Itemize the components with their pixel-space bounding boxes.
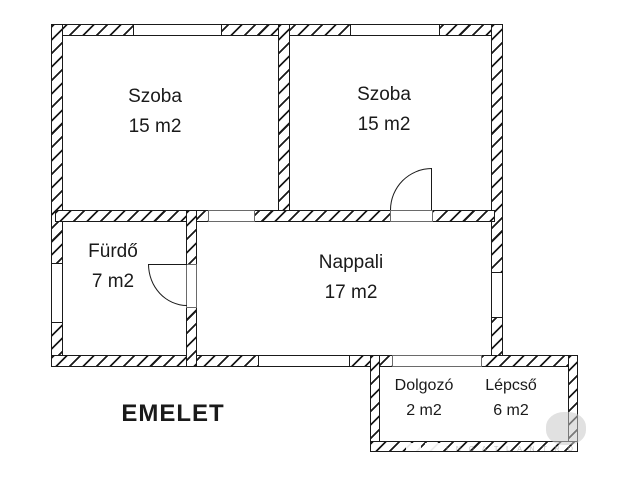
room-area: 6 m2 (485, 398, 537, 423)
room-name: Szoba (128, 82, 182, 112)
window-left-furdo (51, 263, 63, 323)
room-label-szoba-2: Szoba 15 m2 (357, 80, 411, 140)
floor-plan: Szoba 15 m2 Szoba 15 m2 Fürdő 7 m2 Nappa… (0, 0, 640, 480)
room-label-furdo: Fürdő 7 m2 (88, 237, 138, 297)
room-label-szoba-1: Szoba 15 m2 (128, 82, 182, 142)
room-label-lepcso: Lépcső 6 m2 (485, 373, 537, 423)
watermark-dash (425, 443, 440, 451)
room-name: Nappali (319, 248, 383, 278)
room-name: Lépcső (485, 373, 537, 398)
floor-title: EMELET (121, 400, 224, 428)
room-area: 2 m2 (395, 398, 454, 423)
room-area: 15 m2 (128, 112, 182, 142)
watermark-dash (406, 443, 421, 451)
room-area: 15 m2 (357, 110, 411, 140)
watermark-logo-blob (546, 412, 586, 445)
window-top-szoba1 (133, 24, 222, 36)
room-name: Fürdő (88, 237, 138, 267)
opening-nappali-annex (392, 355, 482, 367)
door-gap-szoba2 (390, 210, 433, 222)
room-name: Dolgozó (395, 373, 454, 398)
passage-szoba1-nappali (208, 210, 255, 222)
window-top-szoba2 (350, 24, 440, 36)
door-arc-szoba2 (390, 168, 432, 210)
room-label-nappali: Nappali 17 m2 (319, 248, 383, 308)
room-area: 7 m2 (88, 267, 138, 297)
room-area: 17 m2 (319, 278, 383, 308)
room-label-dolgozo: Dolgozó 2 m2 (395, 373, 454, 423)
door-arc-furdo (148, 264, 187, 306)
wall-between-szoba-rooms (278, 24, 290, 222)
room-name: Szoba (357, 80, 411, 110)
window-right-nappali (491, 272, 503, 318)
wall-annex-left (370, 355, 380, 452)
window-bottom-nappali (258, 355, 350, 367)
door-gap-furdo (186, 264, 197, 308)
watermark-text: I N G A T L A N T R O (446, 446, 576, 453)
